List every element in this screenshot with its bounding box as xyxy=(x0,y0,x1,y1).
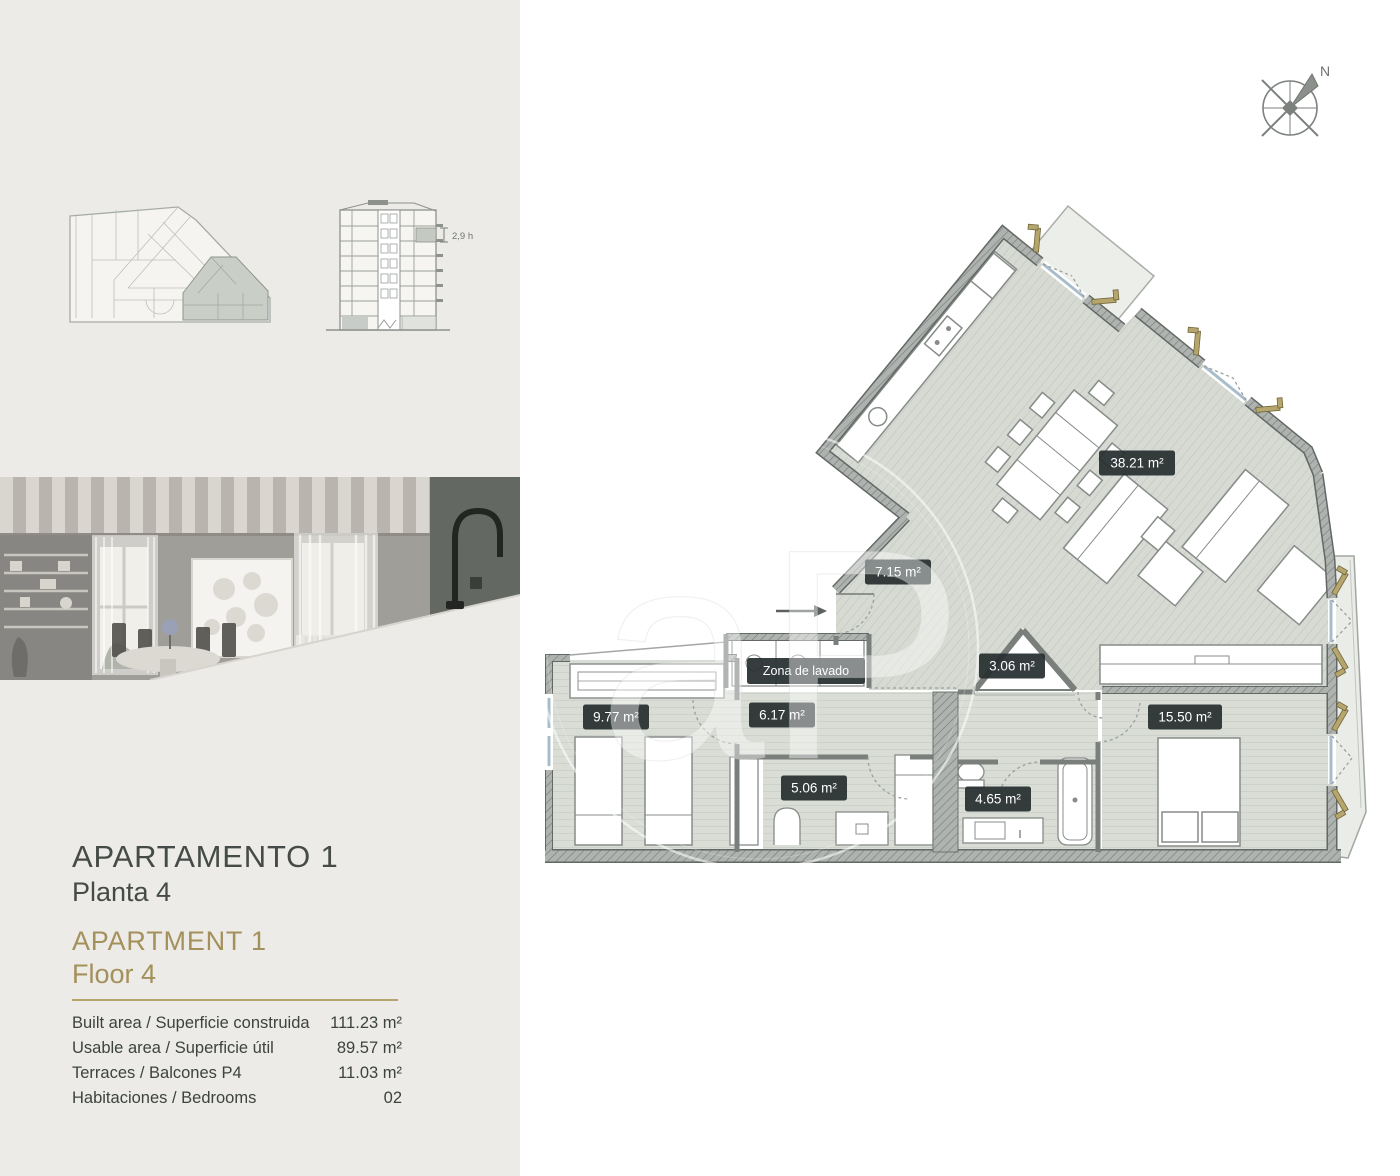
spec-row-usable-area: Usable area / Superficie útil 89.57 m² xyxy=(72,1036,402,1061)
room-badge: 38.21 m² xyxy=(1099,451,1175,476)
spec-row-bedrooms: Habitaciones / Bedrooms 02 xyxy=(72,1086,402,1111)
photo-flowers xyxy=(162,619,178,635)
spec-value: 02 xyxy=(384,1086,402,1111)
watermark-logo: aP xyxy=(598,486,965,822)
room-badge: 3.06 m² xyxy=(979,654,1045,679)
building-section-diagram: 2,9 h xyxy=(318,192,478,350)
highlighted-floor-unit xyxy=(416,228,436,242)
spec-label: Habitaciones / Bedrooms xyxy=(72,1086,256,1111)
svg-text:38.21 m²: 38.21 m² xyxy=(1110,456,1164,471)
svg-text:3.06 m²: 3.06 m² xyxy=(989,659,1035,674)
gold-divider xyxy=(72,999,398,1001)
section-height-label: 2,9 h xyxy=(452,231,473,242)
room-badge: 15.50 m² xyxy=(1148,705,1222,730)
room-badge: 4.65 m² xyxy=(965,787,1031,812)
watermark: aP xyxy=(538,428,978,868)
spec-label: Terraces / Balcones P4 xyxy=(72,1061,242,1086)
apartment-title-en: APARTMENT 1 xyxy=(72,925,267,957)
spec-label: Usable area / Superficie útil xyxy=(72,1036,274,1061)
apartment-floor-en: Floor 4 xyxy=(72,958,156,990)
spec-value: 111.23 m² xyxy=(330,1011,402,1036)
spec-row-terraces: Terraces / Balcones P4 11.03 m² xyxy=(72,1061,402,1086)
spec-row-built-area: Built area / Superficie construida 111.2… xyxy=(72,1011,402,1036)
brochure-page: 2,9 h xyxy=(0,0,1400,1176)
spec-value: 89.57 m² xyxy=(337,1036,402,1061)
apartment-floor-es: Planta 4 xyxy=(72,876,171,908)
spec-value: 11.03 m² xyxy=(338,1061,402,1086)
interior-photo xyxy=(0,477,520,680)
building-key-plan xyxy=(58,200,283,350)
svg-text:4.65 m²: 4.65 m² xyxy=(975,792,1021,807)
floor-plan: 38.21 m² 7.15 m² Zona de lavado 3.06 m² … xyxy=(520,0,1400,1176)
spec-label: Built area / Superficie construida xyxy=(72,1011,310,1036)
vestibule-floor xyxy=(958,692,1098,762)
svg-text:15.50 m²: 15.50 m² xyxy=(1158,710,1212,725)
spec-table: Built area / Superficie construida 111.2… xyxy=(72,1011,402,1111)
apartment-title-es: APARTAMENTO 1 xyxy=(72,838,339,875)
